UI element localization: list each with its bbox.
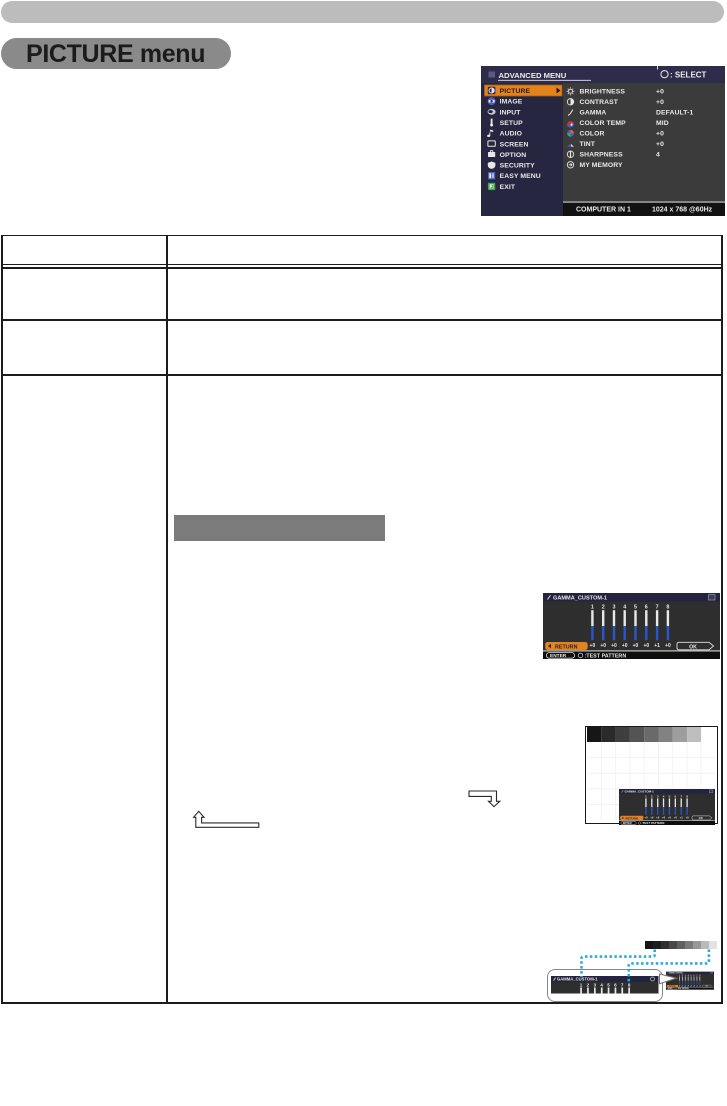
svg-text:BRIGHTNESS: BRIGHTNESS: [580, 89, 626, 96]
svg-text:COLOR TEMP: COLOR TEMP: [580, 120, 627, 127]
svg-text:AUDIO: AUDIO: [500, 131, 522, 138]
svg-text:EXIT: EXIT: [500, 184, 516, 191]
svg-text:+0: +0: [656, 99, 664, 106]
svg-text:PICTURE: PICTURE: [500, 88, 531, 95]
svg-text:GAMMA: GAMMA: [580, 110, 607, 117]
svg-text:COLOR: COLOR: [580, 131, 605, 138]
svg-text:SHARPNESS: SHARPNESS: [580, 152, 624, 159]
svg-text:ADVANCED MENU: ADVANCED MENU: [499, 71, 567, 80]
svg-text:1024 x 768 @60Hz: 1024 x 768 @60Hz: [652, 207, 713, 214]
svg-text:MID: MID: [656, 120, 669, 127]
svg-text:CONTRAST: CONTRAST: [580, 99, 619, 106]
svg-text:MY MEMORY: MY MEMORY: [580, 162, 624, 169]
svg-text:+0: +0: [656, 141, 664, 148]
svg-text:EASY MENU: EASY MENU: [500, 173, 541, 180]
svg-text:OPTION: OPTION: [500, 152, 527, 159]
svg-text:INPUT: INPUT: [500, 109, 522, 116]
svg-text:4: 4: [656, 152, 660, 159]
svg-text:TINT: TINT: [580, 141, 596, 148]
svg-text:SETUP: SETUP: [500, 120, 524, 127]
svg-text:DEFAULT-1: DEFAULT-1: [656, 110, 694, 117]
svg-text:+0: +0: [656, 131, 664, 138]
svg-text:IMAGE: IMAGE: [500, 99, 523, 106]
svg-text:: SELECT: : SELECT: [670, 71, 707, 80]
svg-text:SECURITY: SECURITY: [500, 163, 536, 170]
svg-text:SCREEN: SCREEN: [500, 141, 529, 148]
svg-text:COMPUTER IN 1: COMPUTER IN 1: [576, 207, 631, 214]
svg-text:+0: +0: [656, 89, 664, 96]
